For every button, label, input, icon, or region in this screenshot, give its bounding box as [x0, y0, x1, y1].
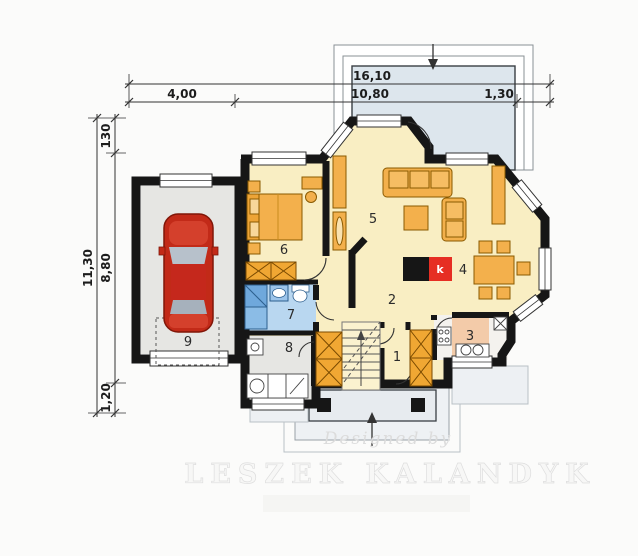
dining-chair — [497, 241, 510, 253]
dim-top-garage: 4,00 — [167, 87, 197, 101]
bedroom-desk — [302, 177, 322, 189]
terrace-window — [446, 153, 488, 165]
dim-top-bay: 1,30 — [484, 87, 514, 101]
room-label-9: 9 — [184, 335, 192, 350]
dim-top-house: 10,80 — [351, 87, 389, 101]
sofa — [383, 168, 452, 197]
dim-left-house: 8,80 — [99, 253, 113, 283]
dining-table — [474, 256, 514, 284]
dining-chair — [497, 287, 510, 299]
living-cabinet — [492, 166, 505, 224]
porch-column — [411, 398, 425, 412]
hall-mirror — [333, 212, 346, 250]
dim-left-total: 11,30 — [81, 249, 95, 287]
bedroom-wardrobe — [246, 262, 296, 280]
kitchen-window — [452, 356, 492, 368]
room-label-2: 2 — [388, 293, 396, 308]
garage-door — [150, 351, 228, 366]
kitchen-sink — [456, 344, 489, 357]
dining-window-east — [539, 248, 551, 290]
watermark-name: LESZEK KALANDYK — [184, 459, 595, 490]
watermark-byline: Designed by — [323, 429, 453, 449]
stairs — [342, 322, 380, 390]
floor-plan-drawing: k — [0, 0, 638, 556]
watermark: Designed by LESZEK KALANDYK — [184, 429, 595, 512]
hall-wardrobe-left — [316, 332, 342, 386]
hall-wardrobe-right — [410, 330, 432, 386]
fridge — [494, 317, 507, 330]
living-north-window — [357, 115, 401, 127]
dim-left-porch: 1,20 — [99, 383, 113, 413]
utility-window — [252, 398, 304, 410]
room-label-6: 6 — [280, 243, 288, 258]
floor-plan-page: k — [0, 0, 638, 556]
room-label-1: 1 — [393, 350, 401, 365]
dining-chair — [479, 287, 492, 299]
dining-chair — [479, 241, 492, 253]
dim-top-total: 16,10 — [353, 69, 391, 83]
bedroom-window — [252, 152, 306, 165]
washing-machine — [247, 339, 263, 355]
room-label-4: 4 — [459, 263, 467, 278]
room-label-5: 5 — [369, 212, 377, 227]
utility-counter — [247, 374, 308, 398]
room-label-3: 3 — [466, 329, 474, 344]
nightstand — [248, 243, 260, 254]
coffee-table — [404, 206, 428, 230]
nightstand — [248, 181, 260, 192]
room-label-8: 8 — [285, 341, 293, 356]
car — [159, 214, 218, 332]
hall-shelf — [333, 156, 346, 208]
dim-left-bay: 130 — [99, 123, 113, 148]
watermark-band — [263, 495, 470, 512]
armchair — [442, 198, 466, 241]
dining-chair — [517, 262, 530, 275]
kitchen-patio — [452, 366, 528, 404]
fireplace-label: k — [436, 263, 444, 276]
shower — [245, 307, 267, 329]
bedroom-stool — [306, 192, 317, 203]
room-label-7: 7 — [287, 308, 295, 323]
washbasin — [270, 285, 288, 301]
fireplace: k — [403, 257, 452, 281]
bed — [247, 194, 302, 240]
stove — [437, 327, 451, 345]
